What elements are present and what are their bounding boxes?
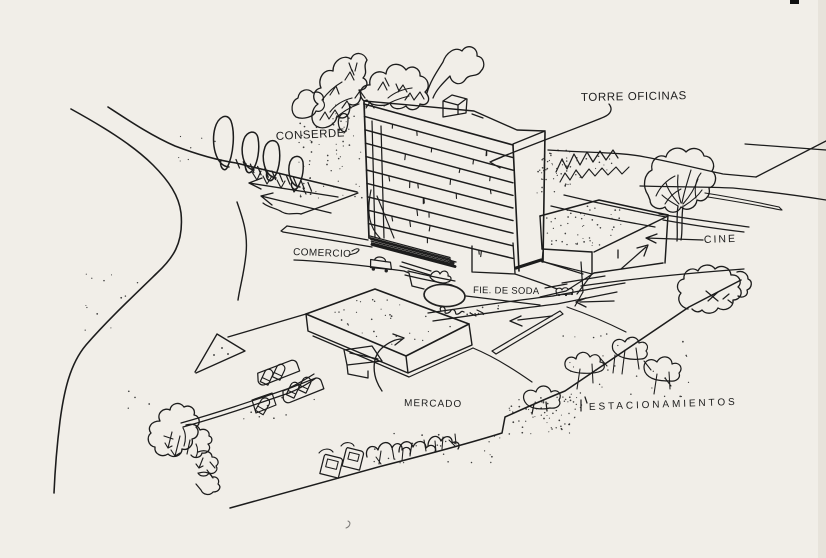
svg-text:MERCADO: MERCADO [404, 398, 462, 410]
svg-text:FIE. DE SODA: FIE. DE SODA [473, 285, 540, 297]
svg-text:TORRE OFICINAS: TORRE OFICINAS [581, 90, 687, 104]
svg-text:CINE: CINE [704, 233, 737, 246]
svg-text:COMERCIO: COMERCIO [293, 247, 352, 260]
